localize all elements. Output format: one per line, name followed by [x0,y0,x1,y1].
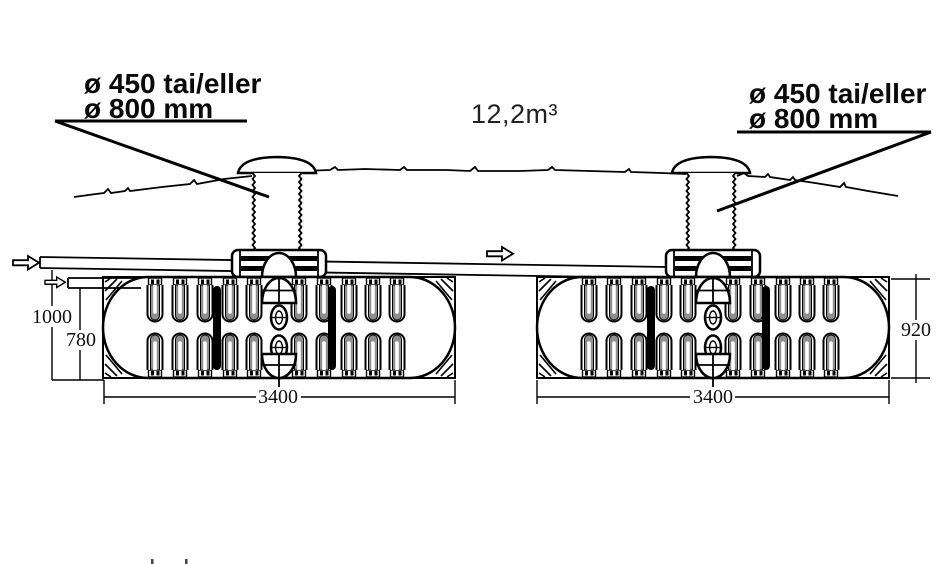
callout-right-line2: ø 800 mm [749,103,878,134]
bottom-edge-marks [151,559,188,564]
right-tank [537,157,889,389]
callout-left-leader [55,121,269,197]
dim-tank-length-left: 3400 [258,386,298,408]
tank-diagram-page: 1000 780 920 3400 3400 ø 450 tai/eller ø… [0,0,940,564]
dim-total-depth: 1000 [32,306,72,328]
callout-right: ø 450 tai/eller ø 800 mm [717,78,931,211]
volume-label: 12,2m³ [471,99,558,129]
dim-tank-length-right: 3400 [693,386,733,408]
flow-arrow-icon [487,247,513,261]
callout-left-line2: ø 800 mm [84,93,213,124]
flow-arrow-icon [45,277,65,288]
inlet-pipe [40,257,667,278]
dim-inlet-depth: 780 [66,329,96,351]
tank-diagram: 1000 780 920 3400 3400 ø 450 tai/eller ø… [0,0,940,564]
dim-tank-height: 920 [901,319,931,341]
flow-arrow-icon [13,256,39,270]
